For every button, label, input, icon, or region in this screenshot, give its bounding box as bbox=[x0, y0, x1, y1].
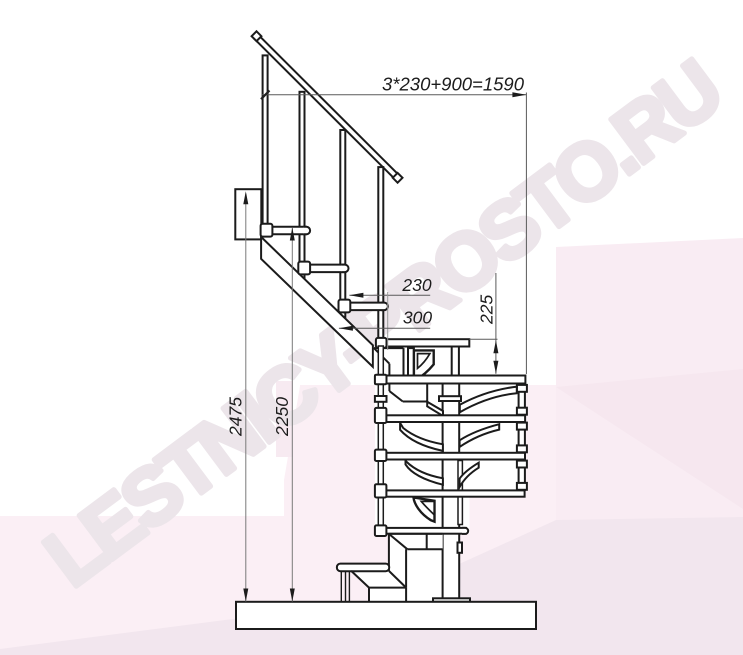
svg-text:300: 300 bbox=[403, 308, 432, 328]
svg-text:2475: 2475 bbox=[226, 397, 246, 437]
svg-text:230: 230 bbox=[401, 275, 431, 295]
svg-text:2250: 2250 bbox=[272, 397, 292, 437]
svg-text:3*230+900=1590: 3*230+900=1590 bbox=[382, 74, 525, 95]
svg-text:225: 225 bbox=[477, 295, 497, 325]
